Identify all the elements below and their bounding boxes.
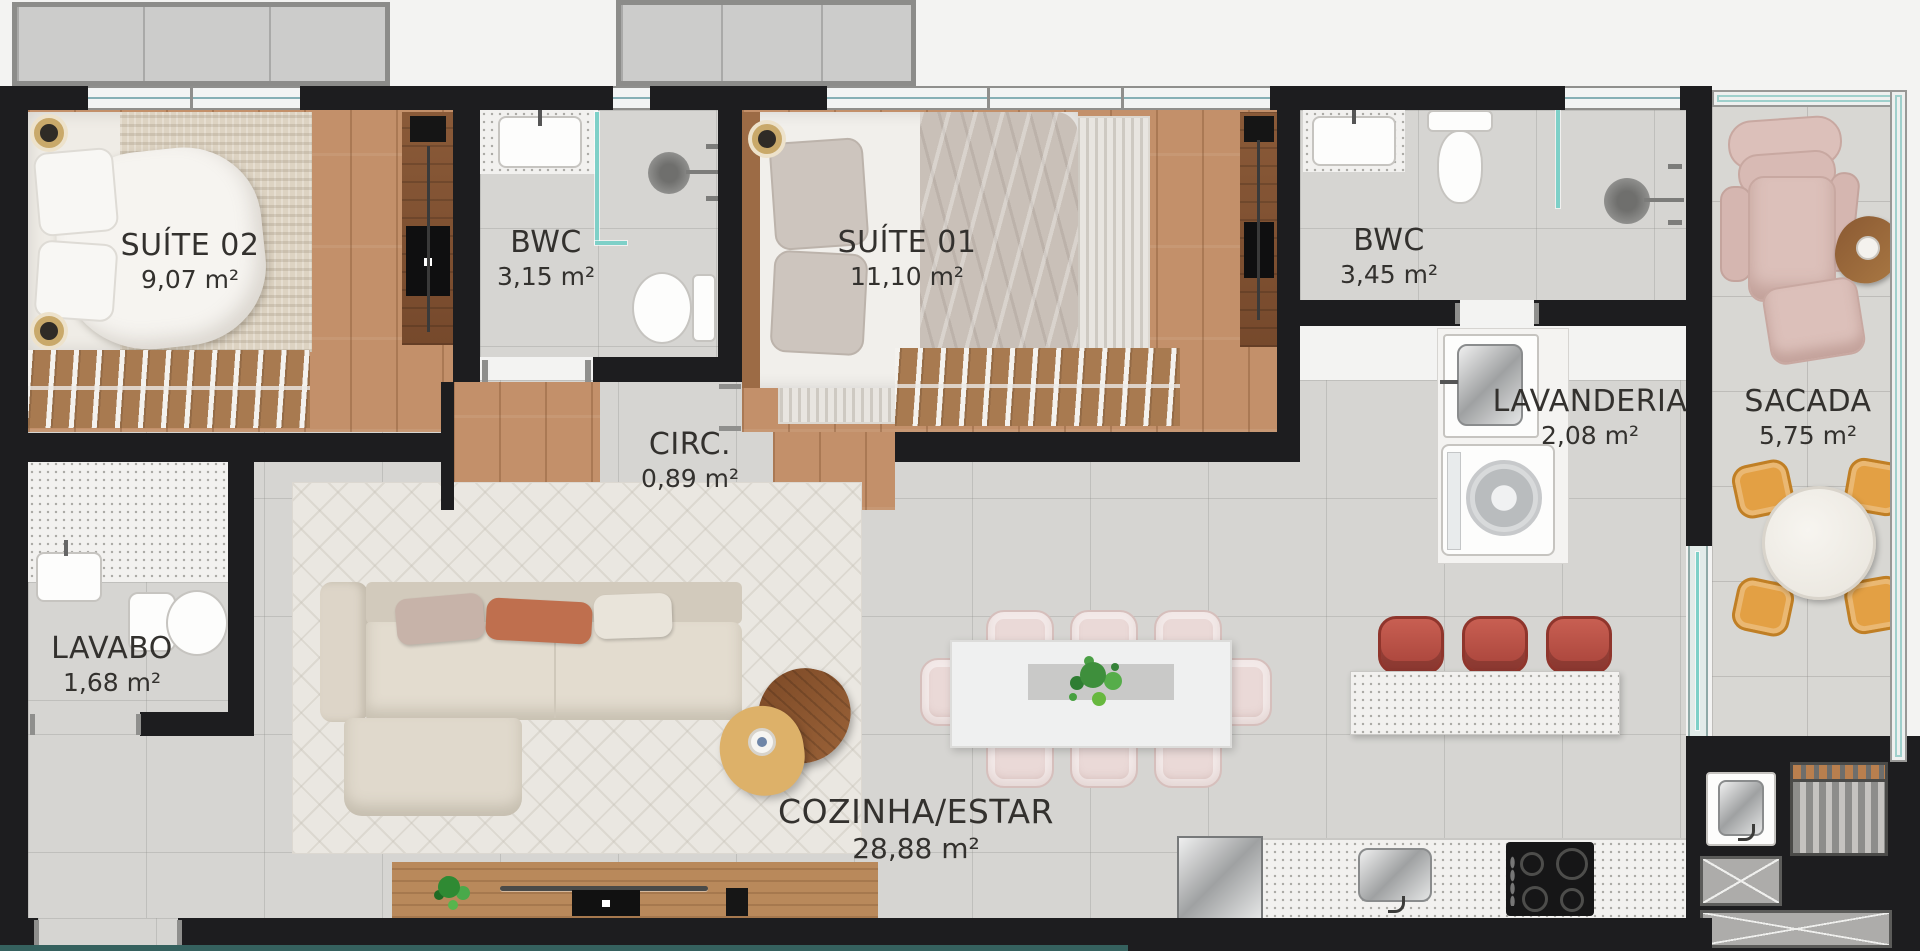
room-label-suite02: SUÍTE 02 9,07 m² — [121, 228, 260, 295]
room-area: 28,88 m² — [778, 832, 1054, 866]
service-shaft — [1700, 856, 1782, 906]
washing-machine-panel — [1447, 452, 1461, 550]
suite01-headboard — [742, 112, 760, 388]
media-device — [726, 888, 748, 916]
refrigerator — [1177, 836, 1263, 920]
wall-lavabo-east — [228, 433, 254, 735]
wall-bwc-suite01-bottom — [1534, 300, 1686, 326]
room-name: BWC — [1340, 223, 1438, 260]
kitchen-counter — [1263, 838, 1686, 918]
room-area: 0,89 m² — [641, 464, 739, 495]
room-area: 3,45 m² — [1340, 260, 1438, 291]
bwc-suite02-door-jamb — [585, 360, 591, 382]
sofa-arm — [320, 582, 368, 722]
room-area: 2,08 m² — [1493, 421, 1688, 452]
bwc-suite01-window — [1565, 86, 1680, 110]
bwc-suite01-toilet-bowl — [1437, 130, 1483, 204]
kitchen-island — [1350, 671, 1620, 735]
room-label-lavanderia: LAVANDERIA 2,08 m² — [1493, 384, 1688, 451]
kitchen-sink — [1358, 848, 1432, 902]
bwc-suite02-shower-valve — [706, 196, 718, 201]
suite02-shelf-box — [410, 116, 446, 142]
terrace-ledge — [616, 0, 916, 86]
suite01-shelf-box — [1244, 116, 1274, 142]
suite02-bedside-lamp — [34, 118, 64, 148]
wall-under-suite01 — [895, 432, 1300, 462]
suite01-window — [827, 86, 1270, 110]
wall-suite02-east — [453, 110, 480, 382]
lavabo-faucet — [64, 540, 68, 556]
wall-lavabo-bottom — [140, 712, 254, 736]
wall-suite01-east — [1277, 110, 1300, 462]
bwc-suite01-door-jamb — [1534, 303, 1539, 324]
cooktop-burner — [1520, 852, 1544, 876]
bar-stool — [1546, 616, 1612, 674]
bar-stool — [1462, 616, 1528, 674]
room-area: 9,07 m² — [121, 265, 260, 296]
sofa-pillow-mauve — [394, 592, 486, 645]
balcony-railing-top — [1712, 90, 1906, 107]
room-label-sacada: SACADA 5,75 m² — [1744, 384, 1871, 451]
suite02-window — [88, 86, 300, 110]
suite02-bedside-lamp — [34, 316, 64, 346]
wall-balcony-west — [1686, 86, 1712, 546]
wall-left — [0, 86, 28, 950]
bottom-accent-strip — [0, 945, 1128, 951]
bwc-suite02-shower-glass — [595, 241, 627, 245]
dining-table-plant — [1080, 662, 1106, 688]
suite01-panel-handle — [1257, 140, 1260, 320]
room-label-bwc-suite02: BWC 3,15 m² — [497, 225, 595, 292]
suite02-wardrobe — [28, 350, 310, 428]
bwc-suite02-toilet-bowl — [632, 272, 692, 344]
bwc-suite02-shower-head — [648, 152, 690, 194]
room-name: SUÍTE 01 — [838, 225, 977, 262]
suite02-pillow — [32, 147, 119, 238]
lavabo-door-jamb — [136, 714, 141, 735]
room-name: SUÍTE 02 — [121, 228, 260, 265]
room-label-cozinha-estar: COZINHA/ESTAR 28,88 m² — [778, 792, 1054, 866]
bwc-suite02-door-jamb — [482, 360, 488, 382]
wall-under-suite02 — [0, 433, 453, 462]
wall-bwc-suite02-bottom — [593, 357, 718, 382]
room-name: BWC — [497, 225, 595, 262]
room-label-circulacao: CIRC. 0,89 m² — [641, 427, 739, 494]
laundry-faucet — [1440, 380, 1458, 384]
room-label-suite01: SUÍTE 01 11,10 m² — [838, 225, 977, 292]
bwc-suite01-shower-arm — [1644, 198, 1684, 202]
bwc-suite01-faucet — [1352, 110, 1356, 124]
sofa-pillow-cream — [593, 593, 672, 640]
lavabo-door-jamb — [30, 714, 35, 735]
suite01-bedside-lamp — [752, 124, 782, 154]
bwc-suite02-faucet — [538, 110, 542, 126]
balcony-side-table-cup — [1856, 236, 1880, 260]
lounge-ottoman — [1760, 275, 1867, 367]
coffee-table-tray-dot — [757, 737, 767, 747]
barbecue-grill-wood-rack — [1790, 762, 1888, 782]
room-area: 3,15 m² — [497, 262, 595, 293]
media-box-led — [602, 900, 610, 907]
suite01-door-jamb — [719, 384, 741, 389]
room-name: LAVANDERIA — [1493, 384, 1688, 421]
suite02-panel-handle — [427, 146, 430, 332]
cooktop-burner — [1522, 886, 1548, 912]
cooktop-burner — [1556, 848, 1588, 880]
bwc-suite01-shower-glass — [1556, 110, 1560, 208]
room-name: COZINHA/ESTAR — [778, 792, 1054, 832]
room-label-lavabo: LAVABO 1,68 m² — [51, 631, 173, 698]
bwc-suite01-shower-valve — [1668, 164, 1682, 169]
room-name: CIRC. — [641, 427, 739, 464]
room-label-bwc-suite01: BWC 3,45 m² — [1340, 223, 1438, 290]
service-shaft — [1700, 910, 1892, 948]
balcony-sliding-door-glass — [1696, 552, 1699, 730]
room-name: SACADA — [1744, 384, 1871, 421]
bwc-suite02-window — [613, 86, 650, 110]
lavabo-sink — [36, 552, 102, 602]
suite02-pillow — [33, 239, 118, 322]
cooktop-burner — [1560, 888, 1584, 912]
bwc-suite02-toilet-tank — [692, 274, 716, 342]
bwc-suite01-shower-valve — [1668, 220, 1682, 225]
wall-bwc-suite01-bottom — [1300, 300, 1460, 326]
lavabo-toilet-bowl — [166, 590, 228, 656]
balcony-round-table — [1762, 486, 1876, 600]
bar-stool — [1378, 616, 1444, 674]
wall-bwc-suite02-east — [718, 110, 742, 382]
room-area: 1,68 m² — [51, 668, 173, 699]
bwc-suite01-door-jamb — [1455, 303, 1460, 324]
room-area: 11,10 m² — [838, 262, 977, 293]
room-area: 5,75 m² — [1744, 421, 1871, 452]
bwc-suite02-shower-valve — [706, 144, 718, 149]
terrace-ledge — [12, 2, 390, 86]
bwc-suite02-shower-arm — [686, 170, 718, 174]
balcony-railing-right — [1890, 90, 1907, 762]
floor-plan: SUÍTE 02 9,07 m² BWC 3,15 m² SUÍTE 01 11… — [0, 0, 1920, 951]
sofa-chaise — [344, 718, 522, 816]
washing-machine-drum — [1466, 460, 1542, 536]
room-name: LAVABO — [51, 631, 173, 668]
bwc-suite01-toilet-tank — [1427, 110, 1493, 132]
bwc-suite02-shower-glass — [595, 112, 599, 244]
suite01-wardrobe — [895, 348, 1180, 426]
cooktop-knobs — [1510, 856, 1515, 906]
sofa-pillow-terracotta — [485, 597, 593, 644]
console-plant — [438, 876, 460, 898]
